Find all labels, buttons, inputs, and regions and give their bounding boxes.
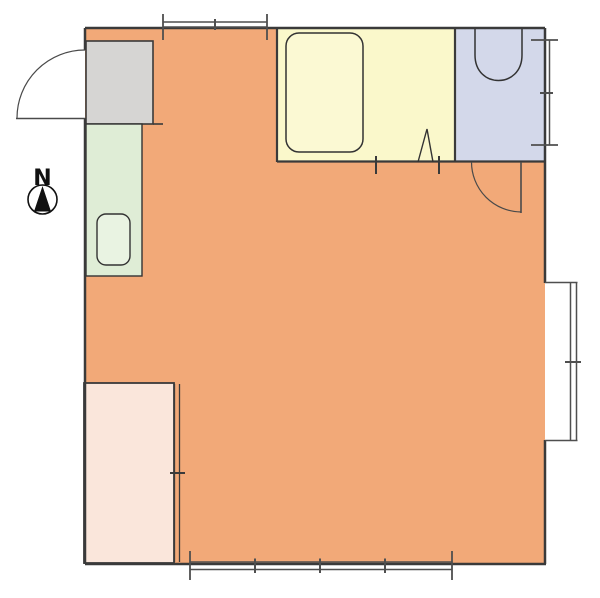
closet: [84, 383, 174, 563]
compass-icon: N: [28, 166, 57, 214]
right-bay-window: [545, 282, 581, 441]
entrance: [86, 41, 153, 124]
floor-plan-page: N: [0, 0, 600, 598]
entrance-door-arc: [17, 50, 85, 118]
floor-plan-drawing: N: [0, 0, 600, 598]
bathtub: [286, 33, 363, 152]
entrance-door: [16, 50, 85, 119]
kitchen-sink: [97, 214, 130, 265]
toilet-room: [455, 28, 545, 162]
